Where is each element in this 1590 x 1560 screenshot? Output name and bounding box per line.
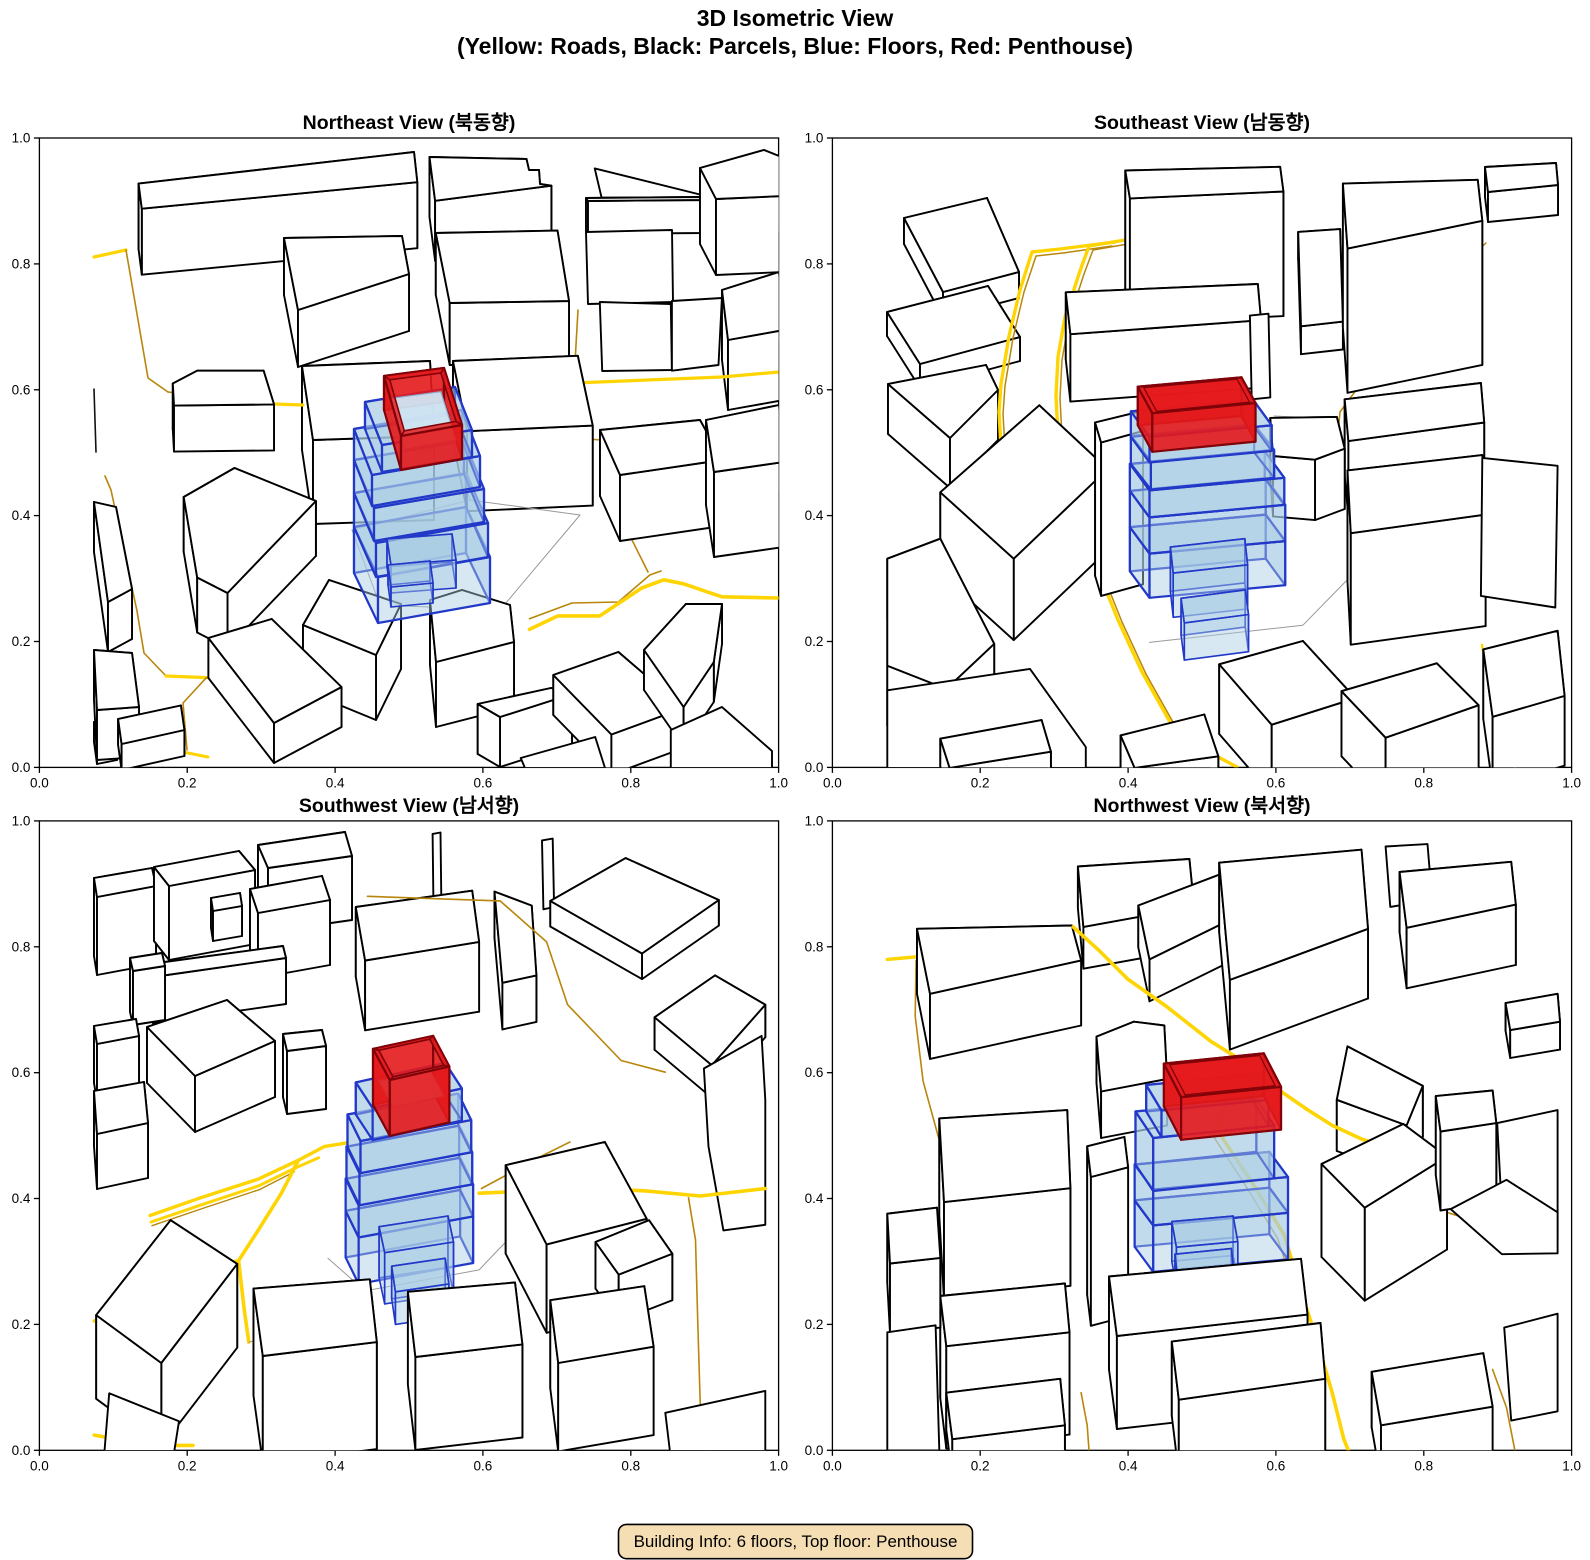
svg-text:0.8: 0.8: [805, 939, 824, 954]
svg-text:0.8: 0.8: [1414, 775, 1433, 790]
svg-text:0.4: 0.4: [326, 775, 345, 790]
svg-text:0.2: 0.2: [971, 775, 990, 790]
svg-text:0.0: 0.0: [30, 1458, 49, 1473]
svg-text:0.0: 0.0: [12, 1443, 31, 1458]
svg-text:0.2: 0.2: [12, 634, 31, 649]
svg-text:Northeast View (북동향): Northeast View (북동향): [303, 112, 516, 134]
svg-text:0.4: 0.4: [12, 508, 31, 523]
svg-text:0.8: 0.8: [621, 775, 640, 790]
svg-text:0.0: 0.0: [805, 1443, 824, 1458]
svg-text:Building Info: 6 floors, Top f: Building Info: 6 floors, Top floor: Pent…: [634, 1532, 958, 1551]
svg-text:0.4: 0.4: [326, 1458, 345, 1473]
svg-text:0.2: 0.2: [12, 1317, 31, 1332]
svg-text:Southeast View (남동향): Southeast View (남동향): [1094, 112, 1310, 134]
svg-text:Northwest View (북서향): Northwest View (북서향): [1093, 795, 1310, 817]
svg-text:(Yellow: Roads, Black: Parcels: (Yellow: Roads, Black: Parcels, Blue: Fl…: [457, 33, 1133, 59]
svg-text:Southwest View (남서향): Southwest View (남서향): [299, 795, 519, 817]
svg-text:1.0: 1.0: [769, 775, 788, 790]
svg-text:0.0: 0.0: [823, 1458, 842, 1473]
svg-text:0.4: 0.4: [12, 1191, 31, 1206]
svg-text:0.4: 0.4: [805, 1191, 824, 1206]
svg-text:0.2: 0.2: [805, 1317, 824, 1332]
svg-text:0.8: 0.8: [12, 256, 31, 271]
svg-text:0.8: 0.8: [1414, 1458, 1433, 1473]
svg-text:1.0: 1.0: [12, 813, 31, 828]
svg-text:0.0: 0.0: [823, 775, 842, 790]
svg-text:0.2: 0.2: [178, 1458, 197, 1473]
svg-text:0.6: 0.6: [12, 1065, 31, 1080]
svg-text:0.6: 0.6: [1267, 775, 1286, 790]
svg-text:0.0: 0.0: [805, 760, 824, 775]
svg-text:1.0: 1.0: [769, 1458, 788, 1473]
svg-text:0.4: 0.4: [805, 508, 824, 523]
svg-text:0.2: 0.2: [178, 775, 197, 790]
svg-text:0.0: 0.0: [12, 760, 31, 775]
svg-text:0.2: 0.2: [971, 1458, 990, 1473]
svg-text:0.6: 0.6: [805, 1065, 824, 1080]
svg-text:1.0: 1.0: [1562, 1458, 1581, 1473]
svg-text:0.0: 0.0: [30, 775, 49, 790]
svg-text:1.0: 1.0: [805, 131, 824, 146]
svg-text:0.6: 0.6: [474, 1458, 493, 1473]
svg-text:1.0: 1.0: [805, 813, 824, 828]
svg-text:0.2: 0.2: [805, 634, 824, 649]
svg-text:0.4: 0.4: [1119, 1458, 1138, 1473]
svg-text:0.8: 0.8: [621, 1458, 640, 1473]
svg-text:0.6: 0.6: [805, 382, 824, 397]
svg-text:0.4: 0.4: [1119, 775, 1138, 790]
svg-text:1.0: 1.0: [12, 131, 31, 146]
svg-text:0.8: 0.8: [12, 939, 31, 954]
svg-text:0.6: 0.6: [474, 775, 493, 790]
svg-text:1.0: 1.0: [1562, 775, 1581, 790]
svg-text:0.6: 0.6: [1267, 1458, 1286, 1473]
svg-text:0.8: 0.8: [805, 256, 824, 271]
svg-text:3D Isometric View: 3D Isometric View: [697, 5, 894, 31]
svg-text:0.6: 0.6: [12, 382, 31, 397]
